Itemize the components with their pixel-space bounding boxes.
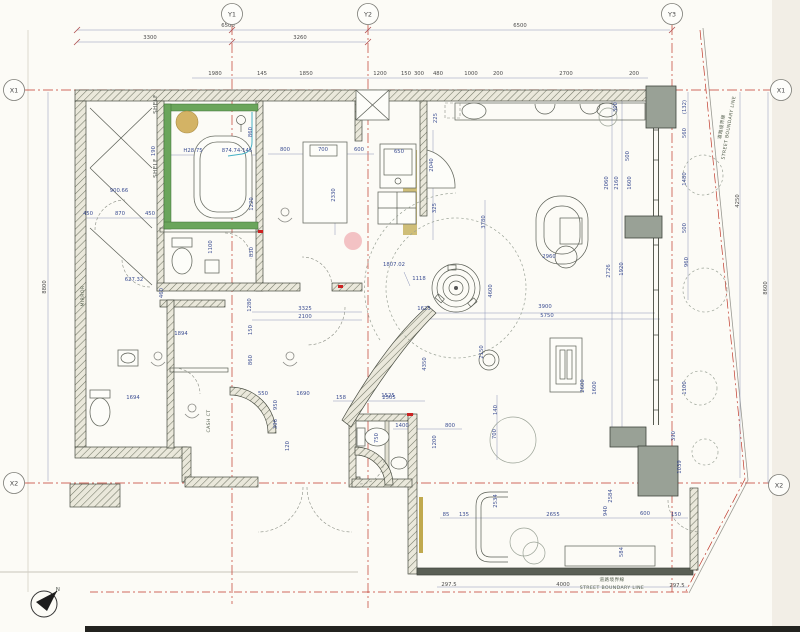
dimension-label: 3900 bbox=[538, 304, 552, 310]
dimension-label: 225 bbox=[433, 113, 439, 123]
grid-bubble-y3: Y3 bbox=[662, 4, 683, 25]
dimension-label: 150 bbox=[671, 512, 682, 518]
dimension-label: 390 bbox=[671, 430, 677, 441]
dimension-label: 200 bbox=[493, 71, 504, 77]
dimension-label: 1850 bbox=[299, 71, 313, 77]
dimension-label: 1220 bbox=[249, 197, 255, 211]
dimension-label: 584 bbox=[619, 546, 625, 557]
svg-text:X1: X1 bbox=[10, 86, 19, 94]
dimension-label: 135 bbox=[459, 512, 469, 518]
dimension-label: 1625 bbox=[417, 306, 430, 312]
bedroom-table bbox=[303, 142, 347, 223]
grid-bubble-x2: X2 bbox=[4, 473, 25, 494]
svg-text:Y2: Y2 bbox=[363, 10, 372, 18]
annotation-label: SHELF bbox=[153, 158, 159, 178]
wall-basin bbox=[118, 350, 138, 366]
dimension-label: 550 bbox=[258, 391, 269, 397]
dimension-label: 800 bbox=[445, 423, 456, 429]
dimension-label: 1100 bbox=[682, 381, 688, 395]
dimension-label: 3260 bbox=[293, 35, 307, 41]
svg-text:X2: X2 bbox=[775, 481, 784, 489]
dimension-label: 960 bbox=[684, 256, 690, 267]
dimension-label: 1039 bbox=[677, 460, 683, 473]
dimension-label: 450 bbox=[145, 211, 156, 217]
dimension-label: 2700 bbox=[559, 71, 573, 77]
dimension-label: 3325 bbox=[298, 306, 311, 312]
dimension-label: 874.74-145 bbox=[222, 148, 253, 154]
grid-bubble-y1: Y1 bbox=[222, 4, 243, 25]
dimension-label: 2505 bbox=[382, 395, 395, 401]
annotation-label: CASH CT bbox=[206, 410, 212, 433]
dimension-label: 2160 bbox=[614, 176, 620, 190]
dimension-label: 1807.02 bbox=[383, 262, 405, 268]
dimension-label: 900.66 bbox=[110, 188, 129, 194]
dimension-label: 120 bbox=[285, 440, 291, 451]
dimension-label: 3780 bbox=[481, 215, 487, 229]
shower-head bbox=[237, 116, 246, 125]
svg-text:Y1: Y1 bbox=[227, 10, 236, 18]
dimension-label: 650 bbox=[394, 149, 405, 155]
dimension-label: 1894 bbox=[174, 331, 188, 337]
dimension-label: 150 bbox=[401, 71, 412, 77]
pink-stool bbox=[344, 232, 362, 250]
dimension-label: 1690 bbox=[296, 391, 310, 397]
grid-bubble-x2: X2 bbox=[769, 475, 790, 496]
dimension-label: 950 bbox=[273, 399, 279, 410]
dimension-label: 145 bbox=[257, 71, 267, 77]
dimension-label: 396 bbox=[273, 418, 279, 429]
grid-bubble-y2: Y2 bbox=[358, 4, 379, 25]
dimension-label: 150 bbox=[248, 324, 254, 335]
dimension-label: 1694 bbox=[126, 395, 140, 401]
dimension-label: 500 bbox=[682, 222, 688, 233]
dimension-label: 190 bbox=[151, 145, 157, 156]
annotation-label: N bbox=[56, 587, 61, 593]
dimension-label: 2060 bbox=[604, 176, 610, 190]
dimension-label: 860 bbox=[248, 126, 254, 137]
toilet-wc1 bbox=[357, 428, 389, 446]
dimension-label: 85 bbox=[443, 512, 450, 518]
dimension-label: 600 bbox=[354, 147, 365, 153]
annotation-label: MIRROR bbox=[80, 285, 86, 306]
floor-plan-page: 6500650033003260198014518501200150300480… bbox=[0, 0, 800, 632]
dimension-label: 1100 bbox=[208, 240, 214, 254]
dimension-label: 1118 bbox=[412, 276, 426, 282]
floor-plan-drawing: 6500650033003260198014518501200150300480… bbox=[0, 0, 800, 632]
svg-text:X1: X1 bbox=[777, 86, 786, 94]
dimension-label: 500 bbox=[625, 150, 631, 161]
bath-stool bbox=[176, 111, 198, 133]
duct-shaft bbox=[356, 90, 389, 120]
dimension-label: 200 bbox=[629, 71, 640, 77]
dimension-label: 700 bbox=[318, 147, 329, 153]
svg-text:X2: X2 bbox=[10, 479, 19, 487]
dimension-label: 1600 bbox=[627, 176, 633, 190]
dimension-label: 830 bbox=[249, 246, 255, 257]
dimension-label: 4250 bbox=[735, 194, 741, 208]
dimension-label: 300 bbox=[414, 71, 425, 77]
grid-bubble-x1: X1 bbox=[4, 80, 25, 101]
terrace-bench bbox=[476, 492, 655, 566]
dimension-label: 460 bbox=[159, 287, 165, 298]
dimension-label: 2726 bbox=[606, 264, 612, 278]
dimension-label: 140 bbox=[493, 404, 499, 415]
dimension-label: 450 bbox=[83, 211, 94, 217]
dimension-label: 1000 bbox=[464, 71, 478, 77]
dimension-label: 1200 bbox=[373, 71, 387, 77]
dimension-label: 870 bbox=[115, 211, 126, 217]
dimension-label: (132) bbox=[682, 100, 688, 114]
dimension-label: 2330 bbox=[331, 188, 337, 202]
dimension-label: 1400 bbox=[395, 423, 409, 429]
floor-hatch bbox=[550, 338, 582, 392]
dimension-label: 1480 bbox=[682, 172, 688, 186]
grid-bubble-x1: X1 bbox=[771, 80, 792, 101]
dimension-label: 3300 bbox=[143, 35, 157, 41]
fixtures bbox=[90, 90, 655, 566]
dimension-label: 1920 bbox=[619, 262, 625, 276]
dimension-label: 1980 bbox=[208, 71, 222, 77]
annotation-label: 道路境界線 bbox=[600, 576, 625, 583]
dimension-label: 860 bbox=[248, 354, 254, 365]
dimension-label: 2150 bbox=[479, 345, 485, 359]
dimension-label: 8800 bbox=[42, 280, 48, 294]
dimension-label: 1280 bbox=[247, 298, 253, 312]
dimension-label: 5750 bbox=[540, 313, 554, 319]
dimension-label: 2534 bbox=[493, 494, 499, 508]
dimension-label: 2584 bbox=[608, 489, 614, 503]
dimension-label: 2960 bbox=[542, 254, 556, 260]
dimension-label: 325 bbox=[432, 203, 438, 213]
annotation-label: STREET BOUNDARY LINE bbox=[580, 585, 645, 591]
dimension-label: 4000 bbox=[556, 582, 570, 588]
closet-shelving bbox=[90, 108, 152, 285]
svg-text:Y3: Y3 bbox=[667, 10, 676, 18]
dimension-label: 8600 bbox=[763, 281, 769, 295]
dimension-label: 750 bbox=[374, 432, 380, 443]
dimension-label: 560 bbox=[682, 127, 688, 138]
dimension-label: 4600 bbox=[488, 284, 494, 298]
dimension-label: H28.75 bbox=[183, 148, 202, 154]
dimension-label: 2600 bbox=[580, 379, 586, 393]
dimension-label: 627.32 bbox=[125, 277, 144, 283]
dimension-label: 1200 bbox=[432, 435, 438, 449]
dimension-label: 300 bbox=[613, 101, 619, 112]
dimension-label: 297.5 bbox=[669, 583, 684, 589]
dimension-label: 2040 bbox=[429, 158, 435, 172]
columns bbox=[610, 86, 678, 496]
dimension-label: 940 bbox=[603, 505, 609, 516]
dimension-label: 1600 bbox=[592, 381, 598, 395]
dimension-label: 6500 bbox=[513, 23, 527, 29]
toilet-corridor-wc bbox=[90, 390, 110, 426]
dimension-label: 600 bbox=[640, 511, 651, 517]
dimension-label: 480 bbox=[433, 71, 444, 77]
dimension-label: 4350 bbox=[422, 357, 428, 371]
north-arrow bbox=[31, 591, 57, 617]
dimension-label: 2655 bbox=[546, 512, 559, 518]
dimension-label: 297.5 bbox=[441, 582, 456, 588]
dimension-label: 700 bbox=[492, 428, 498, 439]
dimension-label: 2100 bbox=[298, 314, 312, 320]
dimension-label: 158 bbox=[336, 395, 347, 401]
wc-basin bbox=[391, 457, 407, 469]
annotation-label: SHELF bbox=[153, 94, 159, 114]
dimension-label: 800 bbox=[280, 147, 291, 153]
